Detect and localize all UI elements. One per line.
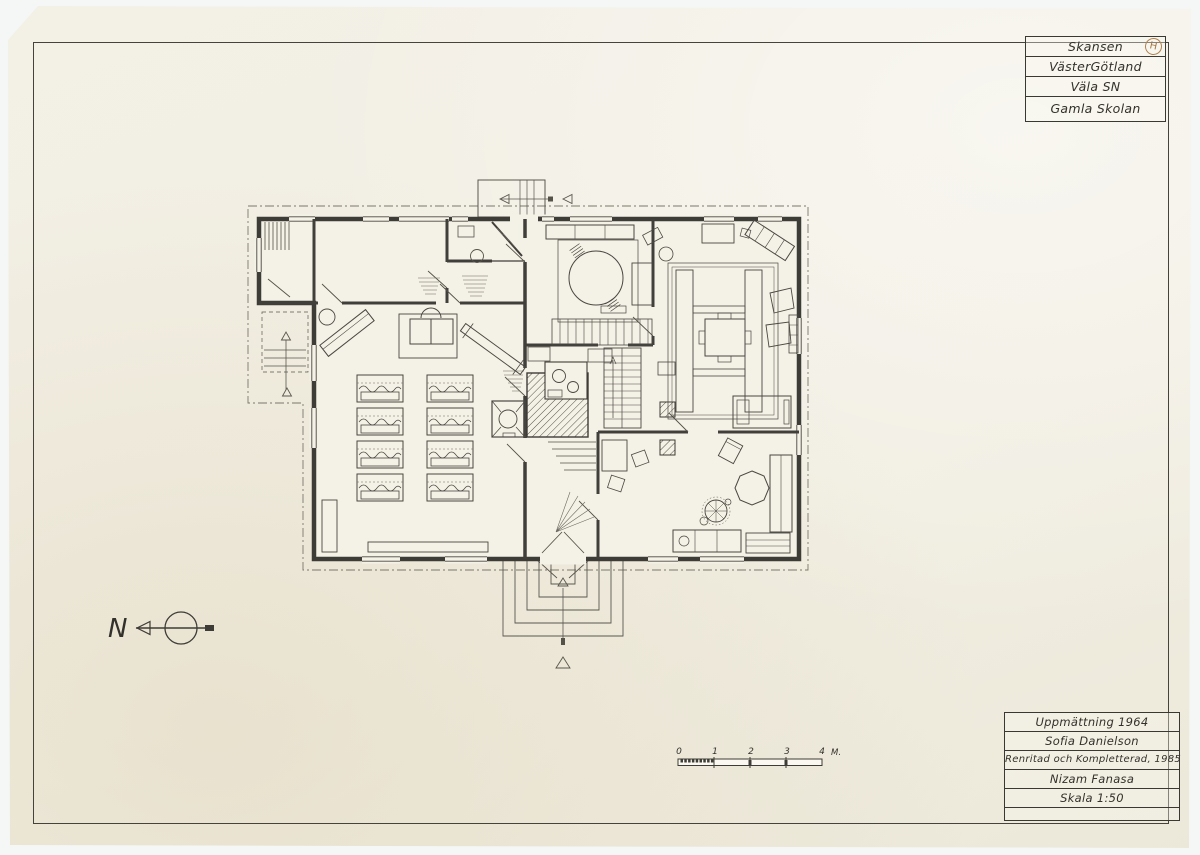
scale-tick-3: 3 [784, 747, 790, 757]
info-line-survey: Uppmättning 1964 [1005, 713, 1179, 732]
desk [357, 408, 403, 435]
info-line-redrawn: Renritad och Kompletterad, 1985 [1005, 751, 1179, 770]
entrance-steps-south [503, 559, 623, 668]
north-arrow: N [108, 612, 214, 644]
info-line-draftsman: Nizam Fanasa [1005, 770, 1179, 789]
scanned-drawing-sheet: { "title_block": { "lines": ["Skansen", … [0, 0, 1200, 855]
stamp-icon: H [1143, 36, 1163, 56]
desk [427, 375, 473, 402]
info-line-surveyor: Sofia Danielson [1005, 732, 1179, 751]
scale-tick-1: 1 [712, 747, 718, 757]
scale-unit: M. [831, 748, 841, 758]
desk [427, 441, 473, 468]
desk [357, 474, 403, 501]
title-line-building: Gamla Skolan [1026, 97, 1165, 121]
scale-bar: 0 1 2 3 4 M. [676, 747, 841, 768]
desk [427, 474, 473, 501]
desk [357, 375, 403, 402]
porch-north [478, 180, 572, 217]
info-line-empty [1005, 808, 1179, 820]
scale-tick-0: 0 [676, 747, 682, 757]
scale-tick-4: 4 [819, 747, 825, 757]
north-label: N [108, 614, 127, 644]
info-block: Uppmättning 1964 Sofia Danielson Renrita… [1004, 712, 1180, 821]
porch-west [262, 312, 308, 396]
title-block: Skansen H VästerGötland Väla SN Gamla Sk… [1025, 36, 1166, 122]
info-line-scale: Skala 1:50 [1005, 789, 1179, 808]
desk [357, 441, 403, 468]
scale-tick-2: 2 [748, 747, 754, 757]
stairs-hall-northwest [265, 222, 289, 250]
title-line-province: VästerGötland [1026, 57, 1165, 77]
desk [427, 408, 473, 435]
title-line-parish: Väla SN [1026, 77, 1165, 97]
title-line-site: Skansen H [1026, 37, 1165, 57]
